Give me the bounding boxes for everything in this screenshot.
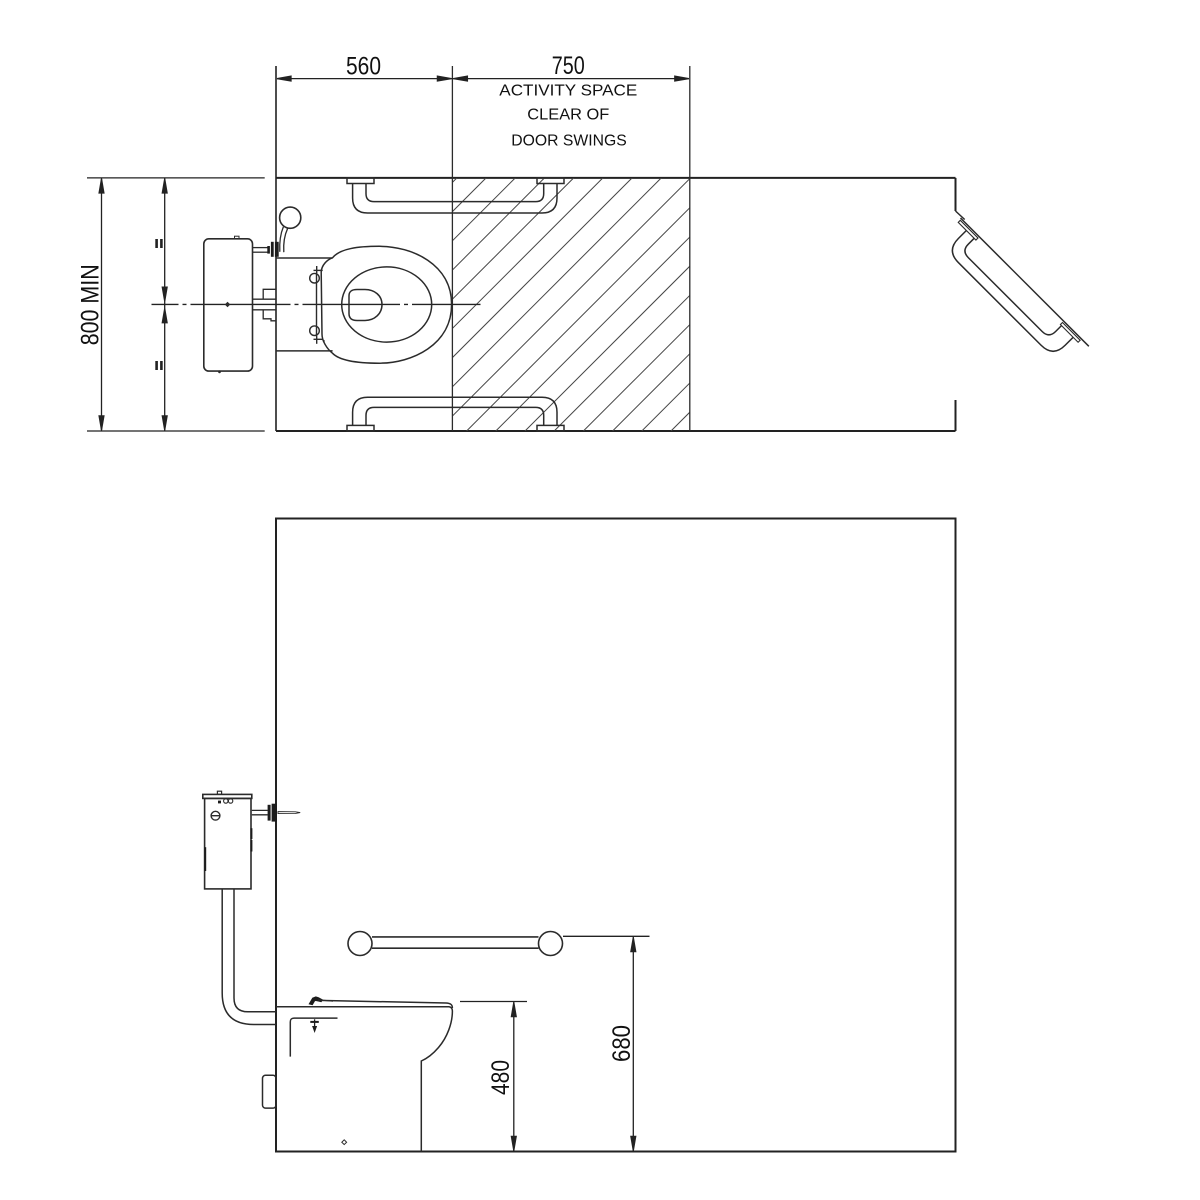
svg-text:480: 480	[487, 1060, 515, 1095]
svg-text:DOOR SWINGS: DOOR SWINGS	[511, 132, 627, 149]
svg-text:CLEAR OF: CLEAR OF	[527, 107, 609, 124]
svg-text:ACTIVITY SPACE: ACTIVITY SPACE	[499, 83, 637, 100]
svg-text:800 MIN: 800 MIN	[77, 264, 105, 345]
svg-text:560: 560	[346, 52, 381, 80]
svg-text:680: 680	[608, 1025, 636, 1062]
svg-text:750: 750	[552, 52, 585, 80]
